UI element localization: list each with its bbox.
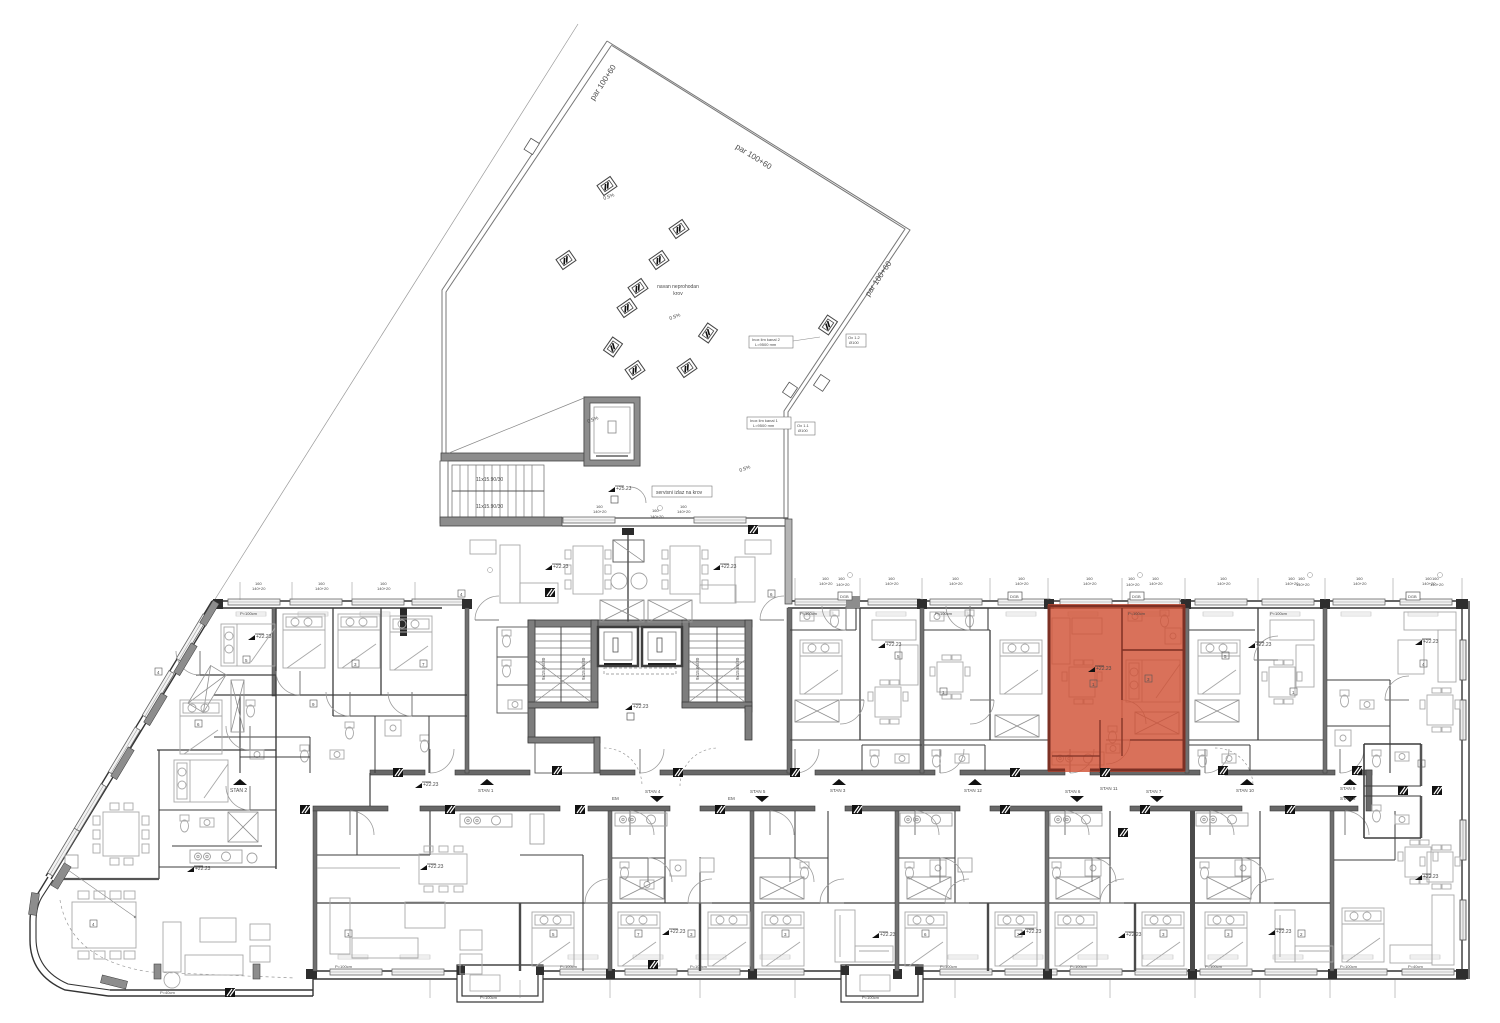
svg-text:Ø100: Ø100 <box>849 340 860 345</box>
svg-text:P=100cm: P=100cm <box>240 611 258 616</box>
svg-text:L=9500 mm: L=9500 mm <box>753 423 775 428</box>
svg-text:STAN 1: STAN 1 <box>478 788 494 793</box>
svg-text:+22.23: +22.23 <box>1423 639 1439 645</box>
svg-text:EM: EM <box>728 796 735 801</box>
svg-text:+22.23: +22.23 <box>880 932 896 938</box>
svg-text:P=40cm: P=40cm <box>1408 964 1423 969</box>
svg-text:140+20: 140+20 <box>1430 582 1444 587</box>
svg-text:navan neprohodan: navan neprohodan <box>657 284 699 290</box>
svg-text:140+20: 140+20 <box>650 514 664 519</box>
svg-text:+22.23: +22.23 <box>670 929 686 935</box>
svg-text:+22.23: +22.23 <box>1126 932 1142 938</box>
svg-text:STAN 12: STAN 12 <box>964 788 982 793</box>
svg-text:DGB: DGB <box>1132 594 1141 599</box>
svg-text:9x15.66/30: 9x15.66/30 <box>581 657 586 680</box>
svg-text:+22.23: +22.23 <box>1026 929 1042 935</box>
svg-text:P=100cm: P=100cm <box>1128 611 1146 616</box>
svg-text:11x15.90/30: 11x15.90/30 <box>476 477 503 483</box>
svg-text:L=9500 mm: L=9500 mm <box>755 342 777 347</box>
svg-text:+22.23: +22.23 <box>721 564 737 570</box>
svg-text:+22.23: +22.23 <box>428 864 444 870</box>
svg-text:140+20: 140+20 <box>1296 582 1310 587</box>
svg-text:P=100cm: P=100cm <box>560 964 578 969</box>
svg-text:servisni izlaz na krov: servisni izlaz na krov <box>656 490 703 496</box>
svg-text:P=100cm: P=100cm <box>1340 964 1358 969</box>
svg-text:STAN 4: STAN 4 <box>645 789 661 794</box>
svg-text:P=100cm: P=100cm <box>335 964 353 969</box>
svg-text:160: 160 <box>1432 576 1439 581</box>
svg-text:EM: EM <box>612 796 619 801</box>
svg-text:140+20: 140+20 <box>1126 582 1140 587</box>
svg-text:+22.23: +22.23 <box>256 634 272 640</box>
svg-text:11x15.90/30: 11x15.90/30 <box>476 504 503 510</box>
svg-text:STAN 5: STAN 5 <box>750 789 766 794</box>
svg-text:+22.23: +22.23 <box>886 642 902 648</box>
svg-text:DGB: DGB <box>1408 594 1417 599</box>
svg-text:160: 160 <box>1128 576 1135 581</box>
svg-text:9x15.66/30: 9x15.66/30 <box>541 657 546 680</box>
svg-text:STAN 3: STAN 3 <box>830 788 846 793</box>
svg-text:STAN 9: STAN 9 <box>1340 786 1356 791</box>
svg-text:+25.23: +25.23 <box>616 486 632 492</box>
svg-text:9x15.66/30: 9x15.66/30 <box>695 657 700 680</box>
svg-text:+22.23: +22.23 <box>1256 642 1272 648</box>
svg-text:160: 160 <box>1298 576 1305 581</box>
svg-text:STAN 10: STAN 10 <box>1236 788 1254 793</box>
svg-text:P=100cm: P=100cm <box>940 964 958 969</box>
svg-text:+22.23: +22.23 <box>195 866 211 872</box>
svg-text:+22.23: +22.23 <box>1096 666 1112 672</box>
svg-text:P=100cm: P=100cm <box>480 995 498 1000</box>
svg-text:9x15.66/30: 9x15.66/30 <box>735 657 740 680</box>
svg-text:+22.23: +22.23 <box>1276 929 1292 935</box>
svg-text:P=100cm: P=100cm <box>935 611 953 616</box>
svg-text:Ø100: Ø100 <box>798 428 809 433</box>
svg-text:P=100cm: P=100cm <box>1270 611 1288 616</box>
svg-text:P=40cm: P=40cm <box>160 990 175 995</box>
svg-text:+22.23: +22.23 <box>553 564 569 570</box>
svg-text:STAN 2: STAN 2 <box>230 788 247 794</box>
svg-text:P=100cm: P=100cm <box>862 995 880 1000</box>
svg-text:P=100cm: P=100cm <box>690 964 708 969</box>
svg-text:STAN 6: STAN 6 <box>1065 789 1081 794</box>
svg-text:140+20: 140+20 <box>836 582 850 587</box>
svg-text:+22.23: +22.23 <box>633 704 649 710</box>
svg-text:P=100cm: P=100cm <box>1205 964 1223 969</box>
svg-text:STAN 11: STAN 11 <box>1100 786 1118 791</box>
svg-text:krov: krov <box>673 291 683 297</box>
svg-text:+22.23: +22.23 <box>1423 874 1439 880</box>
svg-text:160: 160 <box>838 576 845 581</box>
svg-text:P=100cm: P=100cm <box>1070 964 1088 969</box>
svg-text:P=100cm: P=100cm <box>800 611 818 616</box>
svg-text:+22.23: +22.23 <box>423 782 439 788</box>
svg-text:DGB: DGB <box>840 594 849 599</box>
svg-text:DGB: DGB <box>1010 594 1019 599</box>
svg-text:160: 160 <box>652 508 659 513</box>
svg-text:STAN 8: STAN 8 <box>1340 796 1356 801</box>
svg-text:STAN 7: STAN 7 <box>1146 789 1162 794</box>
